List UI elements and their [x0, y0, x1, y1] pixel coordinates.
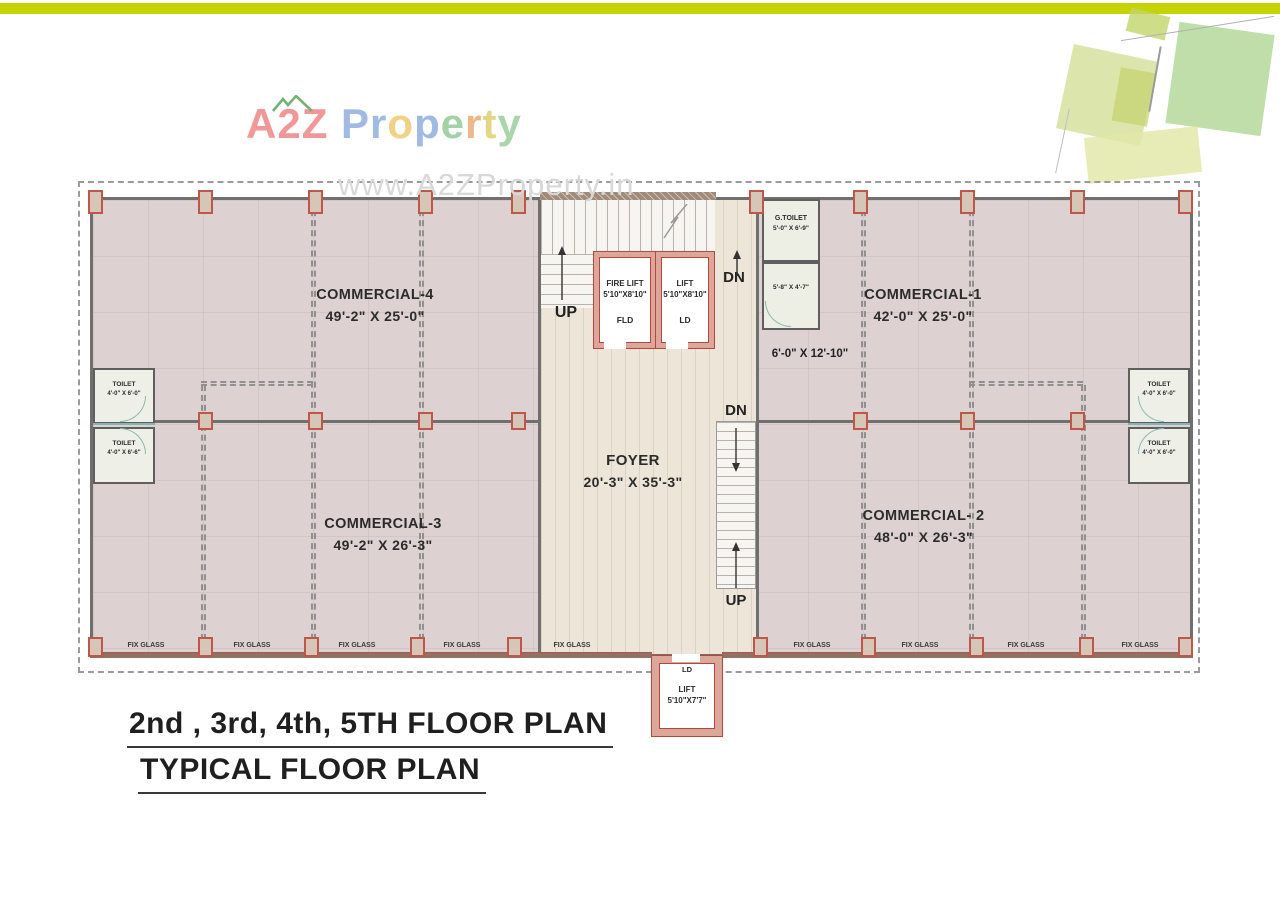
- column: [1070, 412, 1085, 430]
- column: [960, 412, 975, 430]
- wall-foyer-right: [756, 197, 759, 657]
- logo-letter: r: [370, 100, 387, 147]
- fix-glass-label: FIX GLASS: [880, 642, 960, 649]
- column: [198, 190, 213, 214]
- stair-arrow: [731, 250, 743, 276]
- column: [1070, 190, 1085, 214]
- logo-letter: o: [387, 100, 414, 147]
- column: [853, 412, 868, 430]
- room-size: 20'-3" X 35'-3": [558, 474, 708, 490]
- column: [753, 637, 768, 657]
- column: [853, 190, 868, 214]
- wash-room-size: 5'-8" X 4'-7": [764, 284, 818, 291]
- lift-shaft: LIFT 5'10"X8'10" LD: [656, 252, 714, 348]
- column: [198, 637, 213, 657]
- logo-letter: r: [465, 100, 482, 147]
- column: [198, 412, 213, 430]
- fire-lift-door-label: FLD: [599, 315, 651, 326]
- room-size: 48'-0" X 26'-3": [826, 529, 1021, 545]
- foyer-label: FOYER 20'-3" X 35'-3": [558, 452, 708, 490]
- column: [88, 190, 103, 214]
- column: [511, 412, 526, 430]
- room-name: COMMERCIAL-3: [288, 516, 478, 532]
- column: [507, 637, 522, 657]
- room-name: COMMERCIAL-1: [828, 287, 1018, 303]
- fix-glass-label: FIX GLASS: [772, 642, 852, 649]
- logo-letter: t: [482, 100, 497, 147]
- room-name: FOYER: [558, 452, 708, 469]
- toilet-name: TOILET: [1130, 380, 1188, 390]
- column: [308, 190, 323, 214]
- column: [861, 637, 876, 657]
- logo-letter: y: [497, 100, 521, 147]
- column: [308, 412, 323, 430]
- up-label-top-stair: UP: [540, 304, 592, 322]
- column: [88, 637, 103, 657]
- column: [1178, 637, 1193, 657]
- room-name: COMMERCIAL- 2: [826, 508, 1021, 524]
- fix-glass-label: FIX GLASS: [422, 642, 502, 649]
- toilet-door-sill: [93, 423, 155, 425]
- wall-bottom-left: [90, 652, 652, 658]
- room-size: 42'-0" X 25'-0": [828, 308, 1018, 324]
- deco-line: [1055, 109, 1070, 174]
- commercial4-label: COMMERCIAL-4 49'-2" X 25'-0": [280, 287, 470, 324]
- column: [418, 412, 433, 430]
- room-name: COMMERCIAL-4: [280, 287, 470, 303]
- lift-size: 5'10"X8'10": [661, 290, 709, 301]
- bottom-lift-shaft: LD LIFT 5'10"X7'7": [652, 656, 722, 736]
- toilet-name: TOILET: [95, 380, 153, 390]
- brand-top-bar: [0, 3, 1280, 14]
- dn-label-center-stair: DN: [714, 402, 758, 419]
- stair-arrow: [730, 542, 742, 588]
- toilet-door-sill: [1128, 423, 1190, 425]
- fire-lift-name: FIRE LIFT: [599, 279, 651, 290]
- bottom-lift-name: LIFT: [659, 685, 715, 696]
- wall-foyer-left: [538, 197, 541, 657]
- commercial3-label: COMMERCIAL-3 49'-2" X 26'-3": [288, 516, 478, 553]
- bottom-lift-size: 5'10"X7'7": [659, 696, 715, 707]
- deco-square: [1056, 44, 1158, 146]
- logo-letter: p: [414, 100, 441, 147]
- deco-line: [1121, 16, 1274, 41]
- lift-door-gap: [666, 340, 688, 349]
- lift-door-gap: [672, 654, 700, 662]
- commercial1-label: COMMERCIAL-1 42'-0" X 25'-0": [828, 287, 1018, 324]
- wash-room: 5'-8" X 4'-7": [762, 262, 820, 330]
- deco-line: [1148, 46, 1161, 111]
- partition-dashed: [969, 381, 1083, 386]
- fire-lift-shaft: FIRE LIFT 5'10"X8'10" FLD: [594, 252, 656, 348]
- stair-arrow: [730, 428, 742, 472]
- fix-glass-label: FIX GLASS: [212, 642, 292, 649]
- column: [1178, 190, 1193, 214]
- deco-square: [1165, 22, 1274, 136]
- passage-size-label: 6'-0" X 12'-10": [760, 348, 860, 360]
- column: [1079, 637, 1094, 657]
- column: [749, 190, 764, 214]
- lift-door-label: LD: [661, 315, 709, 326]
- floor-plan-page: A2Z Property www.A2ZProperty.in FIRE LIF…: [0, 0, 1280, 904]
- logo-a2z-text: A2Z: [246, 100, 328, 147]
- logo: A2Z Property: [246, 100, 522, 148]
- wall-bottom-right: [722, 652, 1193, 658]
- lift-name: LIFT: [661, 279, 709, 290]
- deco-square: [1084, 126, 1202, 184]
- logo-letter: e: [441, 100, 465, 147]
- typical-plan-title: TYPICAL FLOOR PLAN: [138, 753, 486, 794]
- fix-glass-label: FIX GLASS: [106, 642, 186, 649]
- room-size: 49'-2" X 25'-0": [280, 308, 470, 324]
- watermark: www.A2ZProperty.in: [338, 167, 635, 203]
- deco-square: [1112, 67, 1157, 126]
- fire-lift-size: 5'10"X8'10": [599, 290, 651, 301]
- up-label-center-stair: UP: [714, 592, 758, 609]
- g-toilet-room: G.TOILET 5'-0" X 6'-9": [762, 199, 820, 262]
- commercial2-label: COMMERCIAL- 2 48'-0" X 26'-3": [826, 508, 1021, 545]
- lift-door-gap: [604, 340, 626, 349]
- fix-glass-label: FIX GLASS: [532, 642, 612, 649]
- fix-glass-label: FIX GLASS: [986, 642, 1066, 649]
- logo-letter: P: [341, 100, 370, 147]
- floor-plan-title: 2nd , 3rd, 4th, 5TH FLOOR PLAN: [127, 707, 613, 748]
- partition-dashed: [201, 381, 313, 386]
- g-toilet-name: G.TOILET: [764, 215, 818, 222]
- fix-glass-label: FIX GLASS: [317, 642, 397, 649]
- g-toilet-size: 5'-0" X 6'-9": [764, 225, 818, 232]
- bottom-lift-door-label: LD: [659, 665, 715, 675]
- column: [969, 637, 984, 657]
- stair-arrow: [556, 246, 568, 300]
- room-size: 49'-2" X 26'-3": [288, 537, 478, 553]
- fix-glass-label: FIX GLASS: [1100, 642, 1180, 649]
- column: [960, 190, 975, 214]
